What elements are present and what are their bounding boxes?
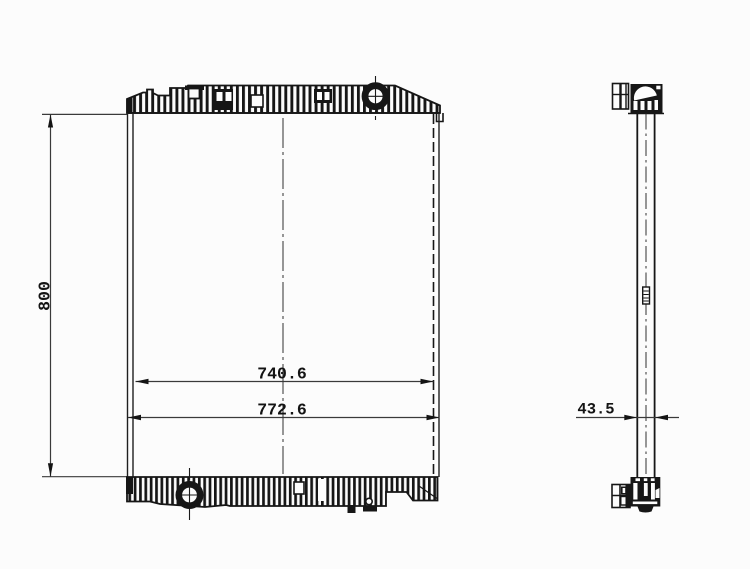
- svg-text:740.6: 740.6: [257, 365, 307, 384]
- svg-text:43.5: 43.5: [577, 400, 614, 418]
- svg-text:800: 800: [36, 281, 55, 311]
- svg-text:772.6: 772.6: [257, 401, 307, 420]
